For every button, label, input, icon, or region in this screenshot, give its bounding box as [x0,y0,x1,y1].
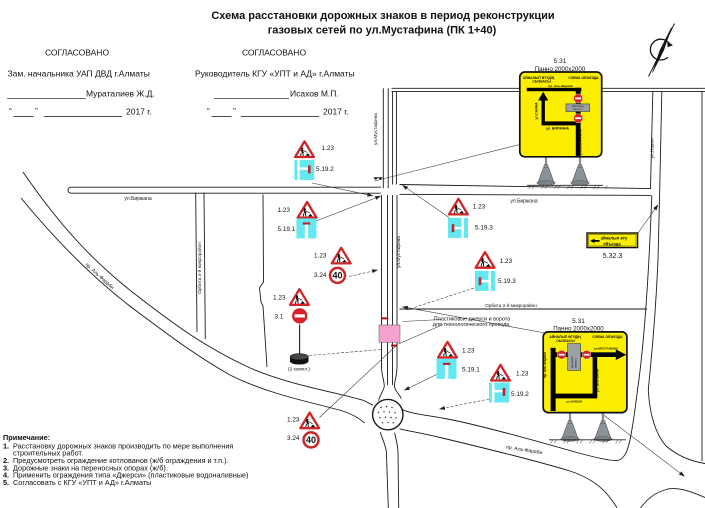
svg-text:1.23: 1.23 [462,348,475,355]
svg-text:айналып өту: айналып өту [601,236,628,241]
svg-text:ДВИЖЕНИЕ: ДВИЖЕНИЕ [572,356,574,368]
svg-text:5.19.2: 5.19.2 [316,166,334,173]
svg-text:ул.Биржана: ул.Биржана [124,196,151,202]
svg-text:1.23: 1.23 [322,145,335,152]
svg-text:1.23: 1.23 [287,417,300,424]
svg-text:5.19.2: 5.19.2 [511,391,529,398]
svg-text:3.24: 3.24 [287,435,300,442]
svg-text:”: ” [233,106,236,116]
svg-text:Орбита 2-й микрорайон: Орбита 2-й микрорайон [485,302,537,308]
svg-text:1.23: 1.23 [314,253,327,260]
svg-text:Схема расстановки дорожных зна: Схема расстановки дорожных знаков в пери… [211,10,554,22]
svg-text:ул.МУСТАФИНА: ул.МУСТАФИНА [579,128,583,155]
svg-text:1.23: 1.23 [278,207,291,214]
svg-text:5.31: 5.31 [572,318,585,325]
svg-text:ДВИЖЕНИЕ: ДВИЖЕНИЕ [572,106,584,108]
svg-text:ул.НАВОИ: ул.НАВОИ [566,400,583,404]
svg-text:5.19.1: 5.19.1 [462,367,480,374]
svg-text:ул.Биржана: ул.Биржана [510,199,537,205]
svg-text:СОГЛАСОВАНО: СОГЛАСОВАНО [242,48,307,58]
svg-text:5.19.3: 5.19.3 [475,225,493,232]
svg-text:ул.САИНА: ул.САИНА [535,102,539,120]
svg-text:Зам. начальника УАП ДВД г.Алма: Зам. начальника УАП ДВД г.Алматы [8,69,150,79]
svg-text:ЗАКРЫТО: ЗАКРЫТО [573,108,583,111]
svg-text:СЫЗБАСЫ: СЫЗБАСЫ [556,339,575,343]
svg-text:5.: 5. [3,478,9,487]
svg-text:СХЕМА ОБЪЕЗДА: СХЕМА ОБЪЕЗДА [592,335,623,339]
svg-text:газовых сетей по ул.Мустафина: газовых сетей по ул.Мустафина (ПК 1+40) [268,25,497,37]
svg-text:3.24: 3.24 [314,272,327,279]
svg-text:Руководитель КГУ «УПТ и АД» г.: Руководитель КГУ «УПТ и АД» г.Алматы [195,69,355,79]
svg-text:2017 г.: 2017 г. [126,107,152,117]
svg-text:5.19.1: 5.19.1 [278,226,296,233]
svg-text:пр. Аль-Фараби: пр. Аль-Фараби [543,352,547,378]
svg-text:1.23: 1.23 [273,295,286,302]
svg-text:пр. Аль-Фараби: пр. Аль-Фараби [548,84,572,88]
svg-text:СОГЛАСОВАНО: СОГЛАСОВАНО [45,48,110,58]
svg-text:5.31: 5.31 [554,58,567,65]
svg-text:1.23: 1.23 [516,371,529,378]
svg-text:ул. БИРЖАНА: ул. БИРЖАНА [546,126,569,130]
svg-text:5.32.3: 5.32.3 [603,253,623,260]
svg-text:“: “ [9,106,12,116]
svg-text:объезда: объезда [603,241,621,246]
svg-text:для технологического прохода: для технологического прохода [433,322,510,328]
svg-text:5.19.3: 5.19.3 [498,278,516,285]
svg-text:ул.Навои: ул.Навои [650,138,656,159]
svg-text:(2 компл.): (2 компл.) [288,367,310,373]
svg-text:Орбита 4-й микрорайон: Орбита 4-й микрорайон [196,242,202,294]
svg-text:“: “ [207,106,210,116]
svg-text:ЗАКРЫТО: ЗАКРЫТО [575,358,578,368]
svg-text:Мураталиев Ж.Д.: Мураталиев Ж.Д. [86,89,155,99]
svg-text:1.23: 1.23 [500,258,513,265]
svg-text:1.23: 1.23 [473,204,486,211]
svg-text:Исахов М.П.: Исахов М.П. [290,89,339,99]
svg-text:3.1: 3.1 [275,314,284,321]
svg-text:2017 г.: 2017 г. [323,107,349,117]
svg-text:ул.Мустафина: ул.Мустафина [396,236,402,268]
svg-text:”: ” [35,106,38,116]
svg-text:Согласовать с КГУ «УПТ и АД» г: Согласовать с КГУ «УПТ и АД» г.Алматы [13,478,151,487]
svg-text:ул.Мустафина: ул.Мустафина [373,113,379,145]
svg-text:ул.МУСТАФИНА: ул.МУСТАФИНА [594,347,619,351]
svg-text:СХЕМА ОБЪЕЗДА: СХЕМА ОБЪЕЗДА [568,76,599,80]
svg-text:1.: 1. [3,441,9,450]
svg-text:ул. БИРЖАНА: ул. БИРЖАНА [596,368,600,392]
